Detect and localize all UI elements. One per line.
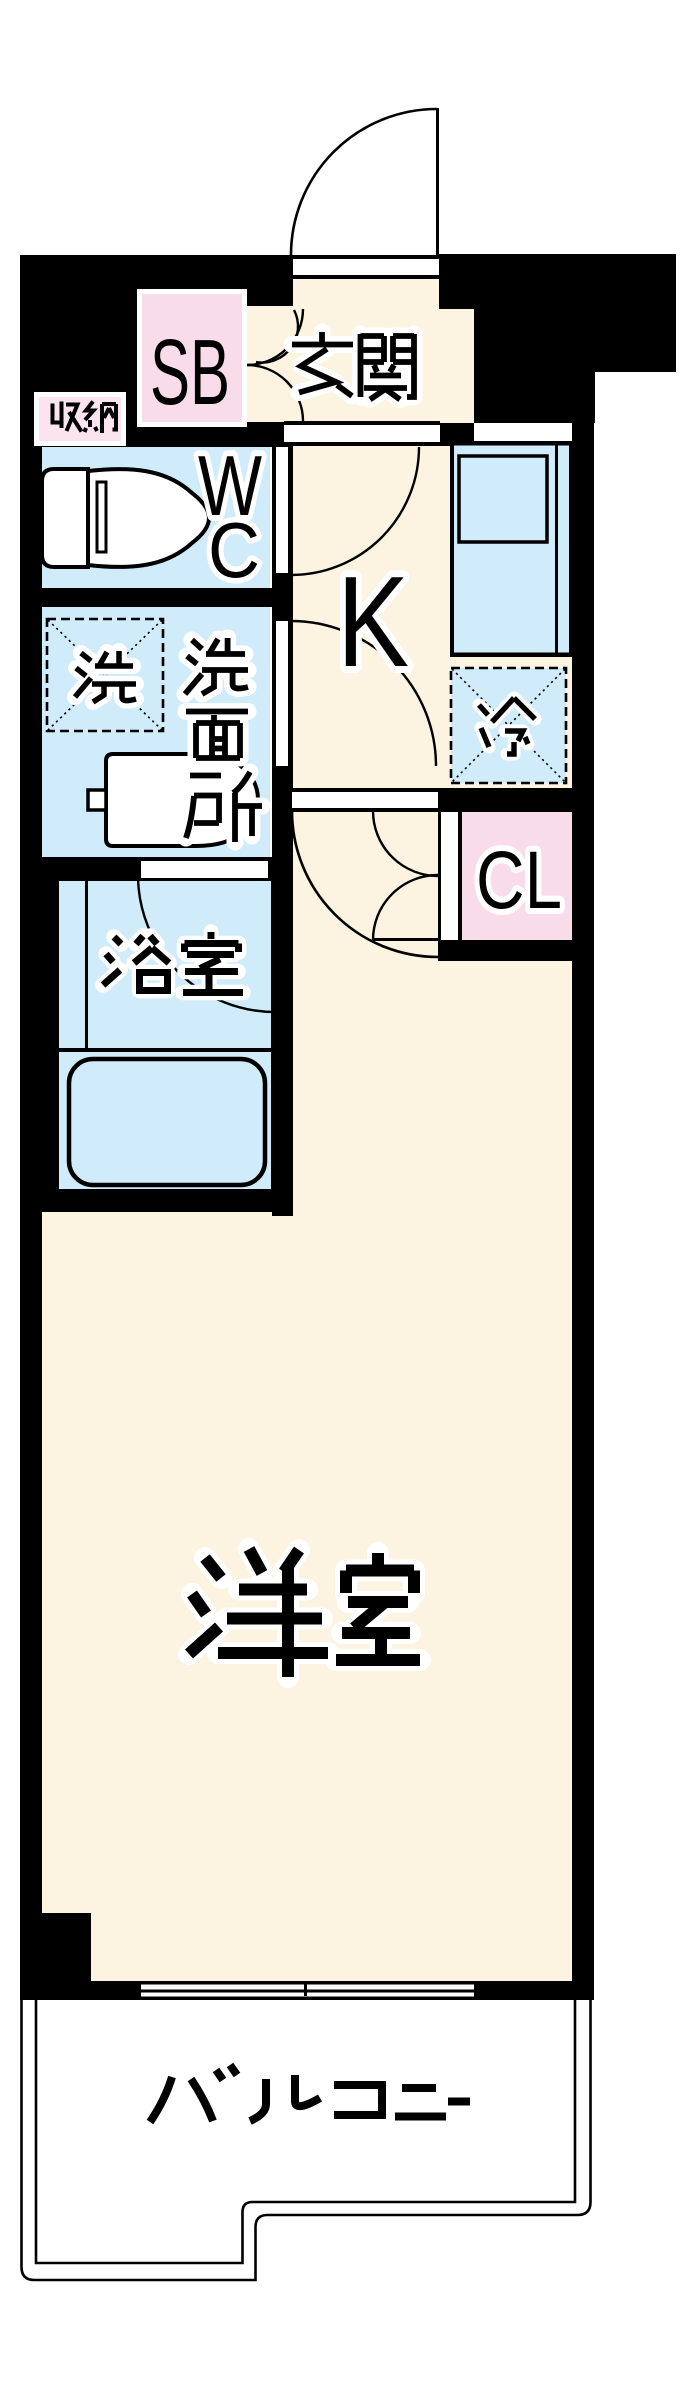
svg-text:K: K: [337, 550, 409, 694]
svg-text:CL: CL: [476, 835, 562, 926]
svg-text:SB: SB: [150, 320, 230, 424]
svg-text:C: C: [208, 506, 260, 594]
